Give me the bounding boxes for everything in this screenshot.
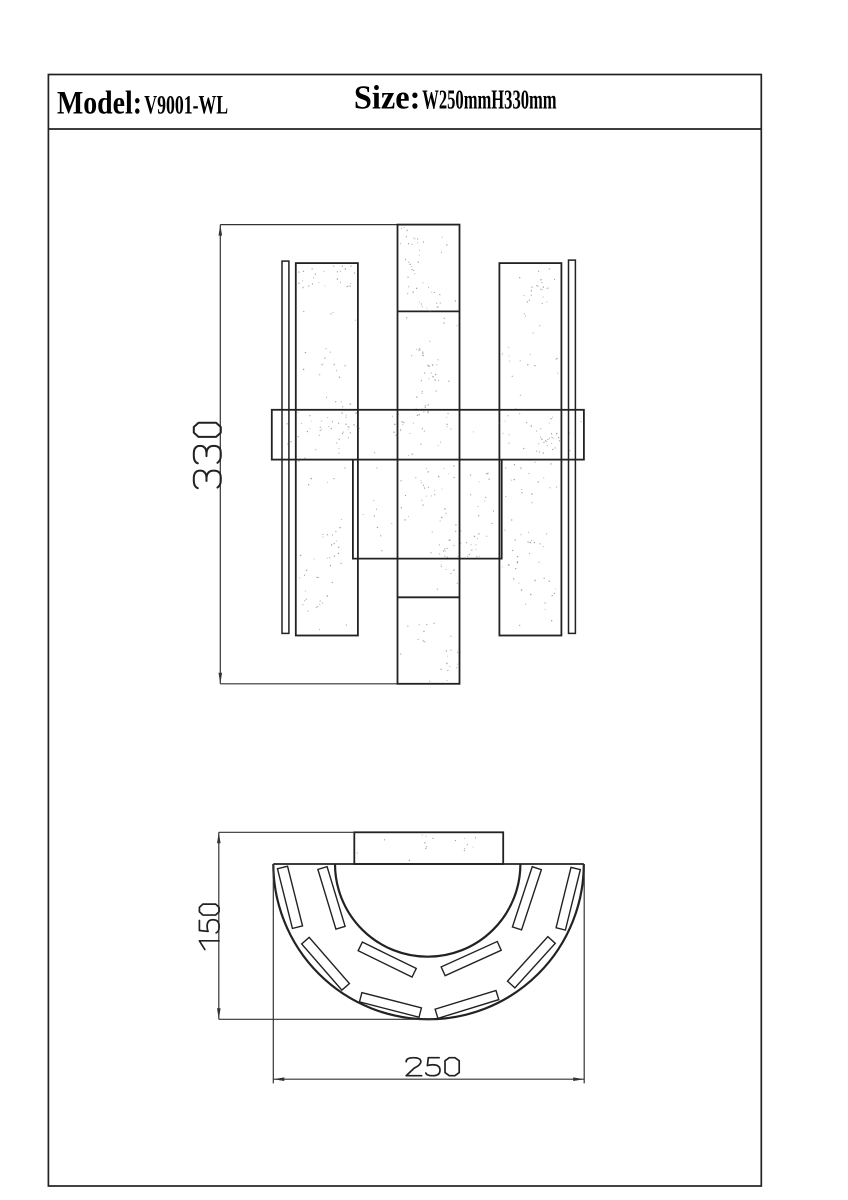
svg-text:W250mmH330mm: W250mmH330mm bbox=[422, 85, 557, 115]
svg-text:Model:: Model: bbox=[57, 85, 142, 121]
svg-text:Size:: Size: bbox=[354, 79, 421, 117]
svg-text:V9001-WL: V9001-WL bbox=[144, 89, 228, 119]
